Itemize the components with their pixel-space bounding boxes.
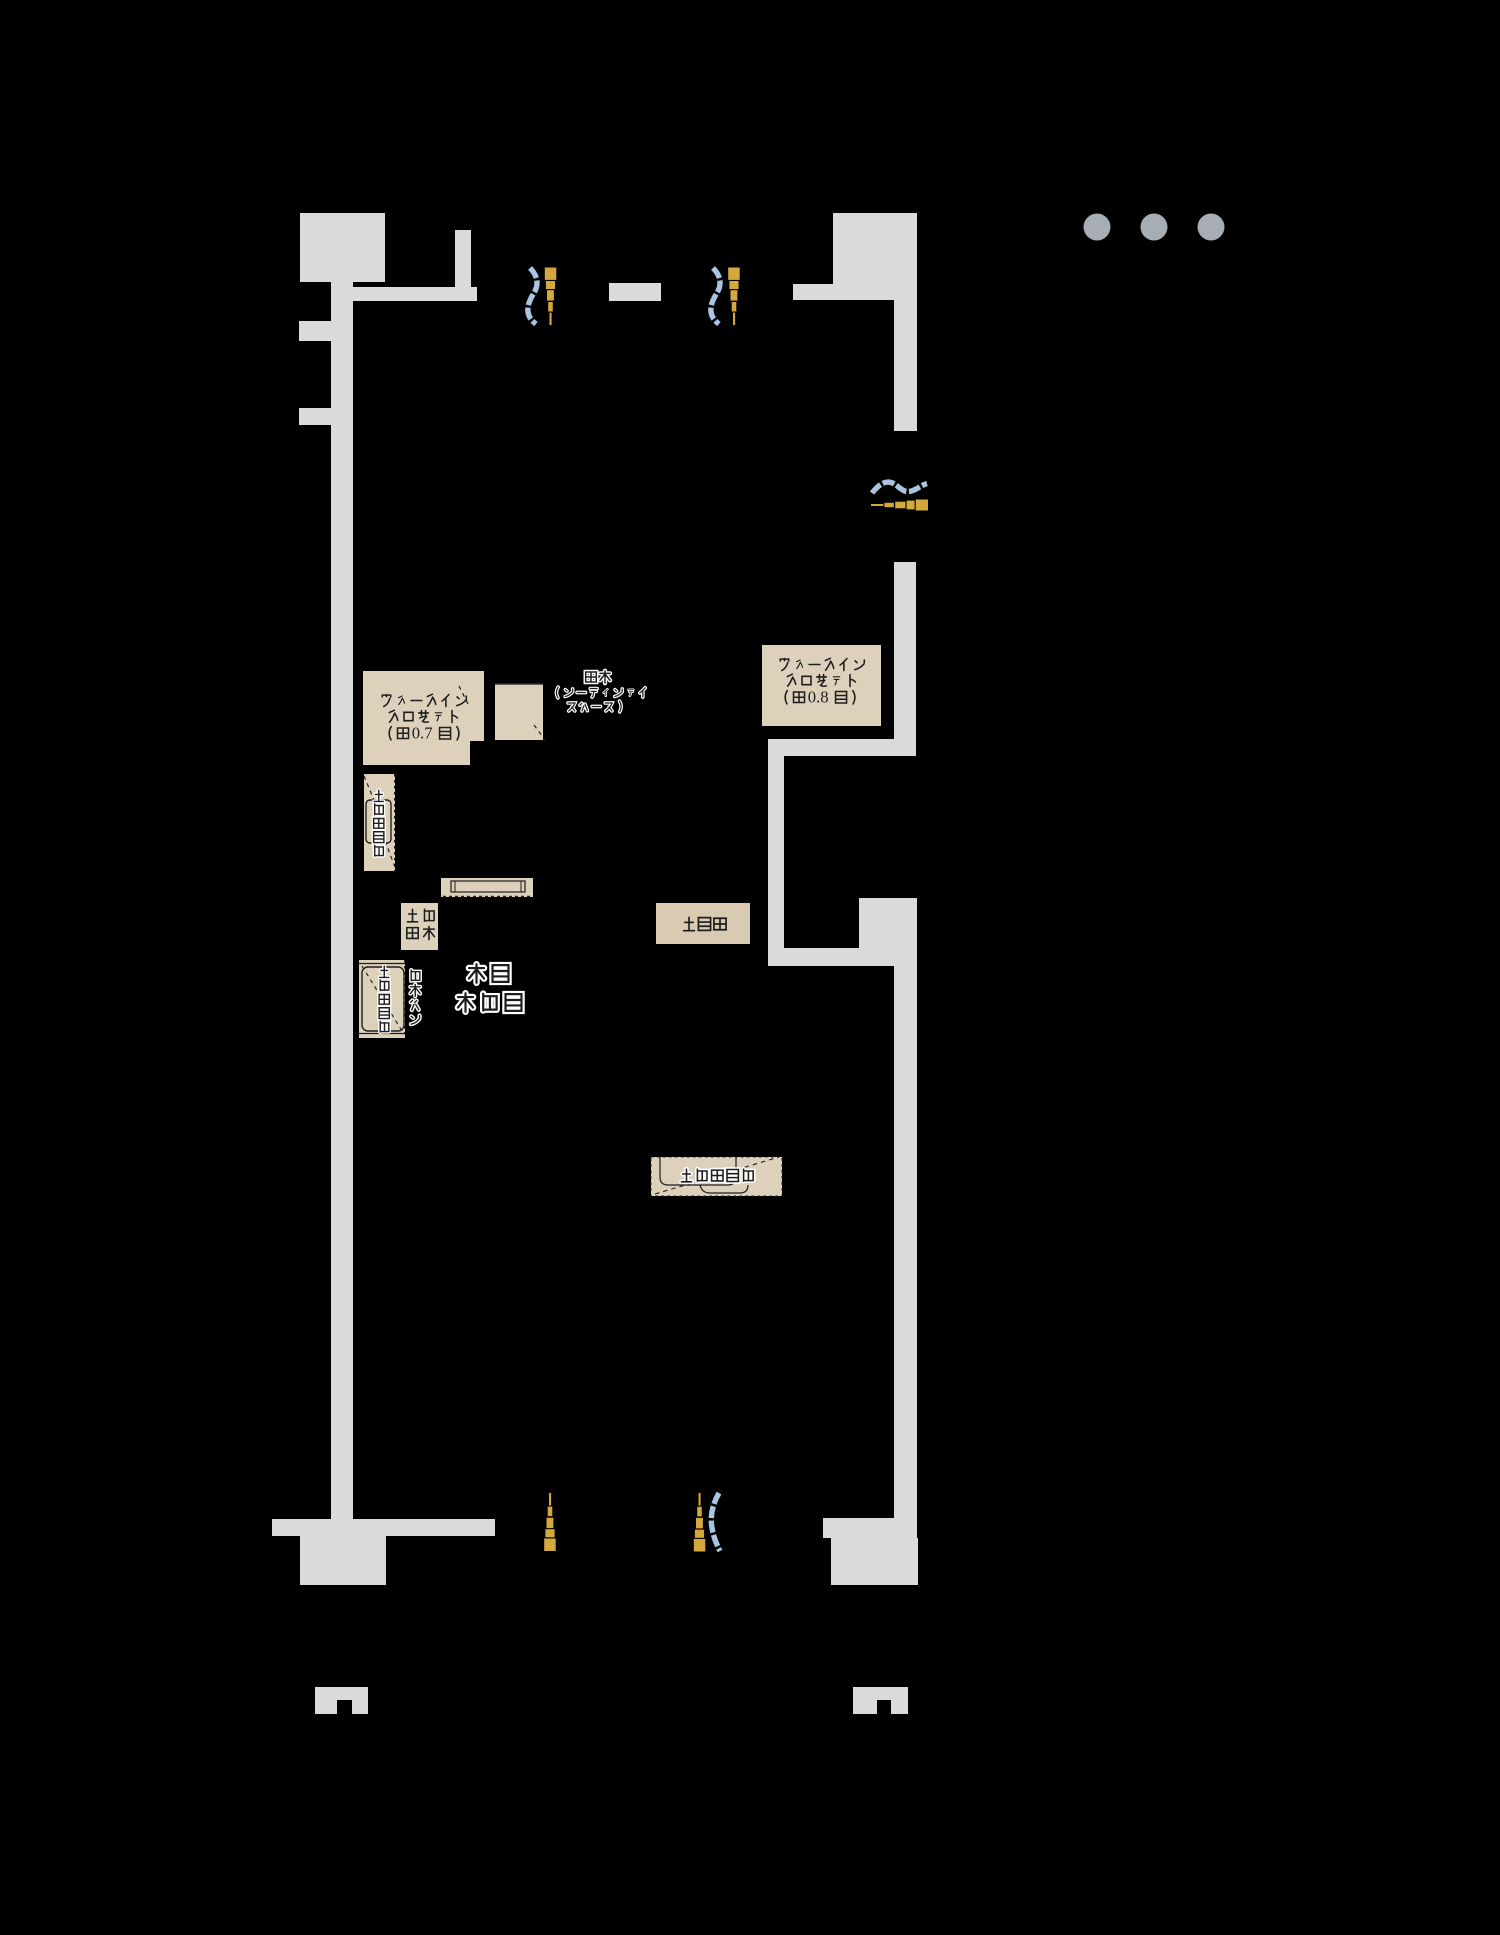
svg-text:0.7: 0.7 (412, 723, 433, 742)
svg-text:0.8: 0.8 (808, 687, 829, 706)
